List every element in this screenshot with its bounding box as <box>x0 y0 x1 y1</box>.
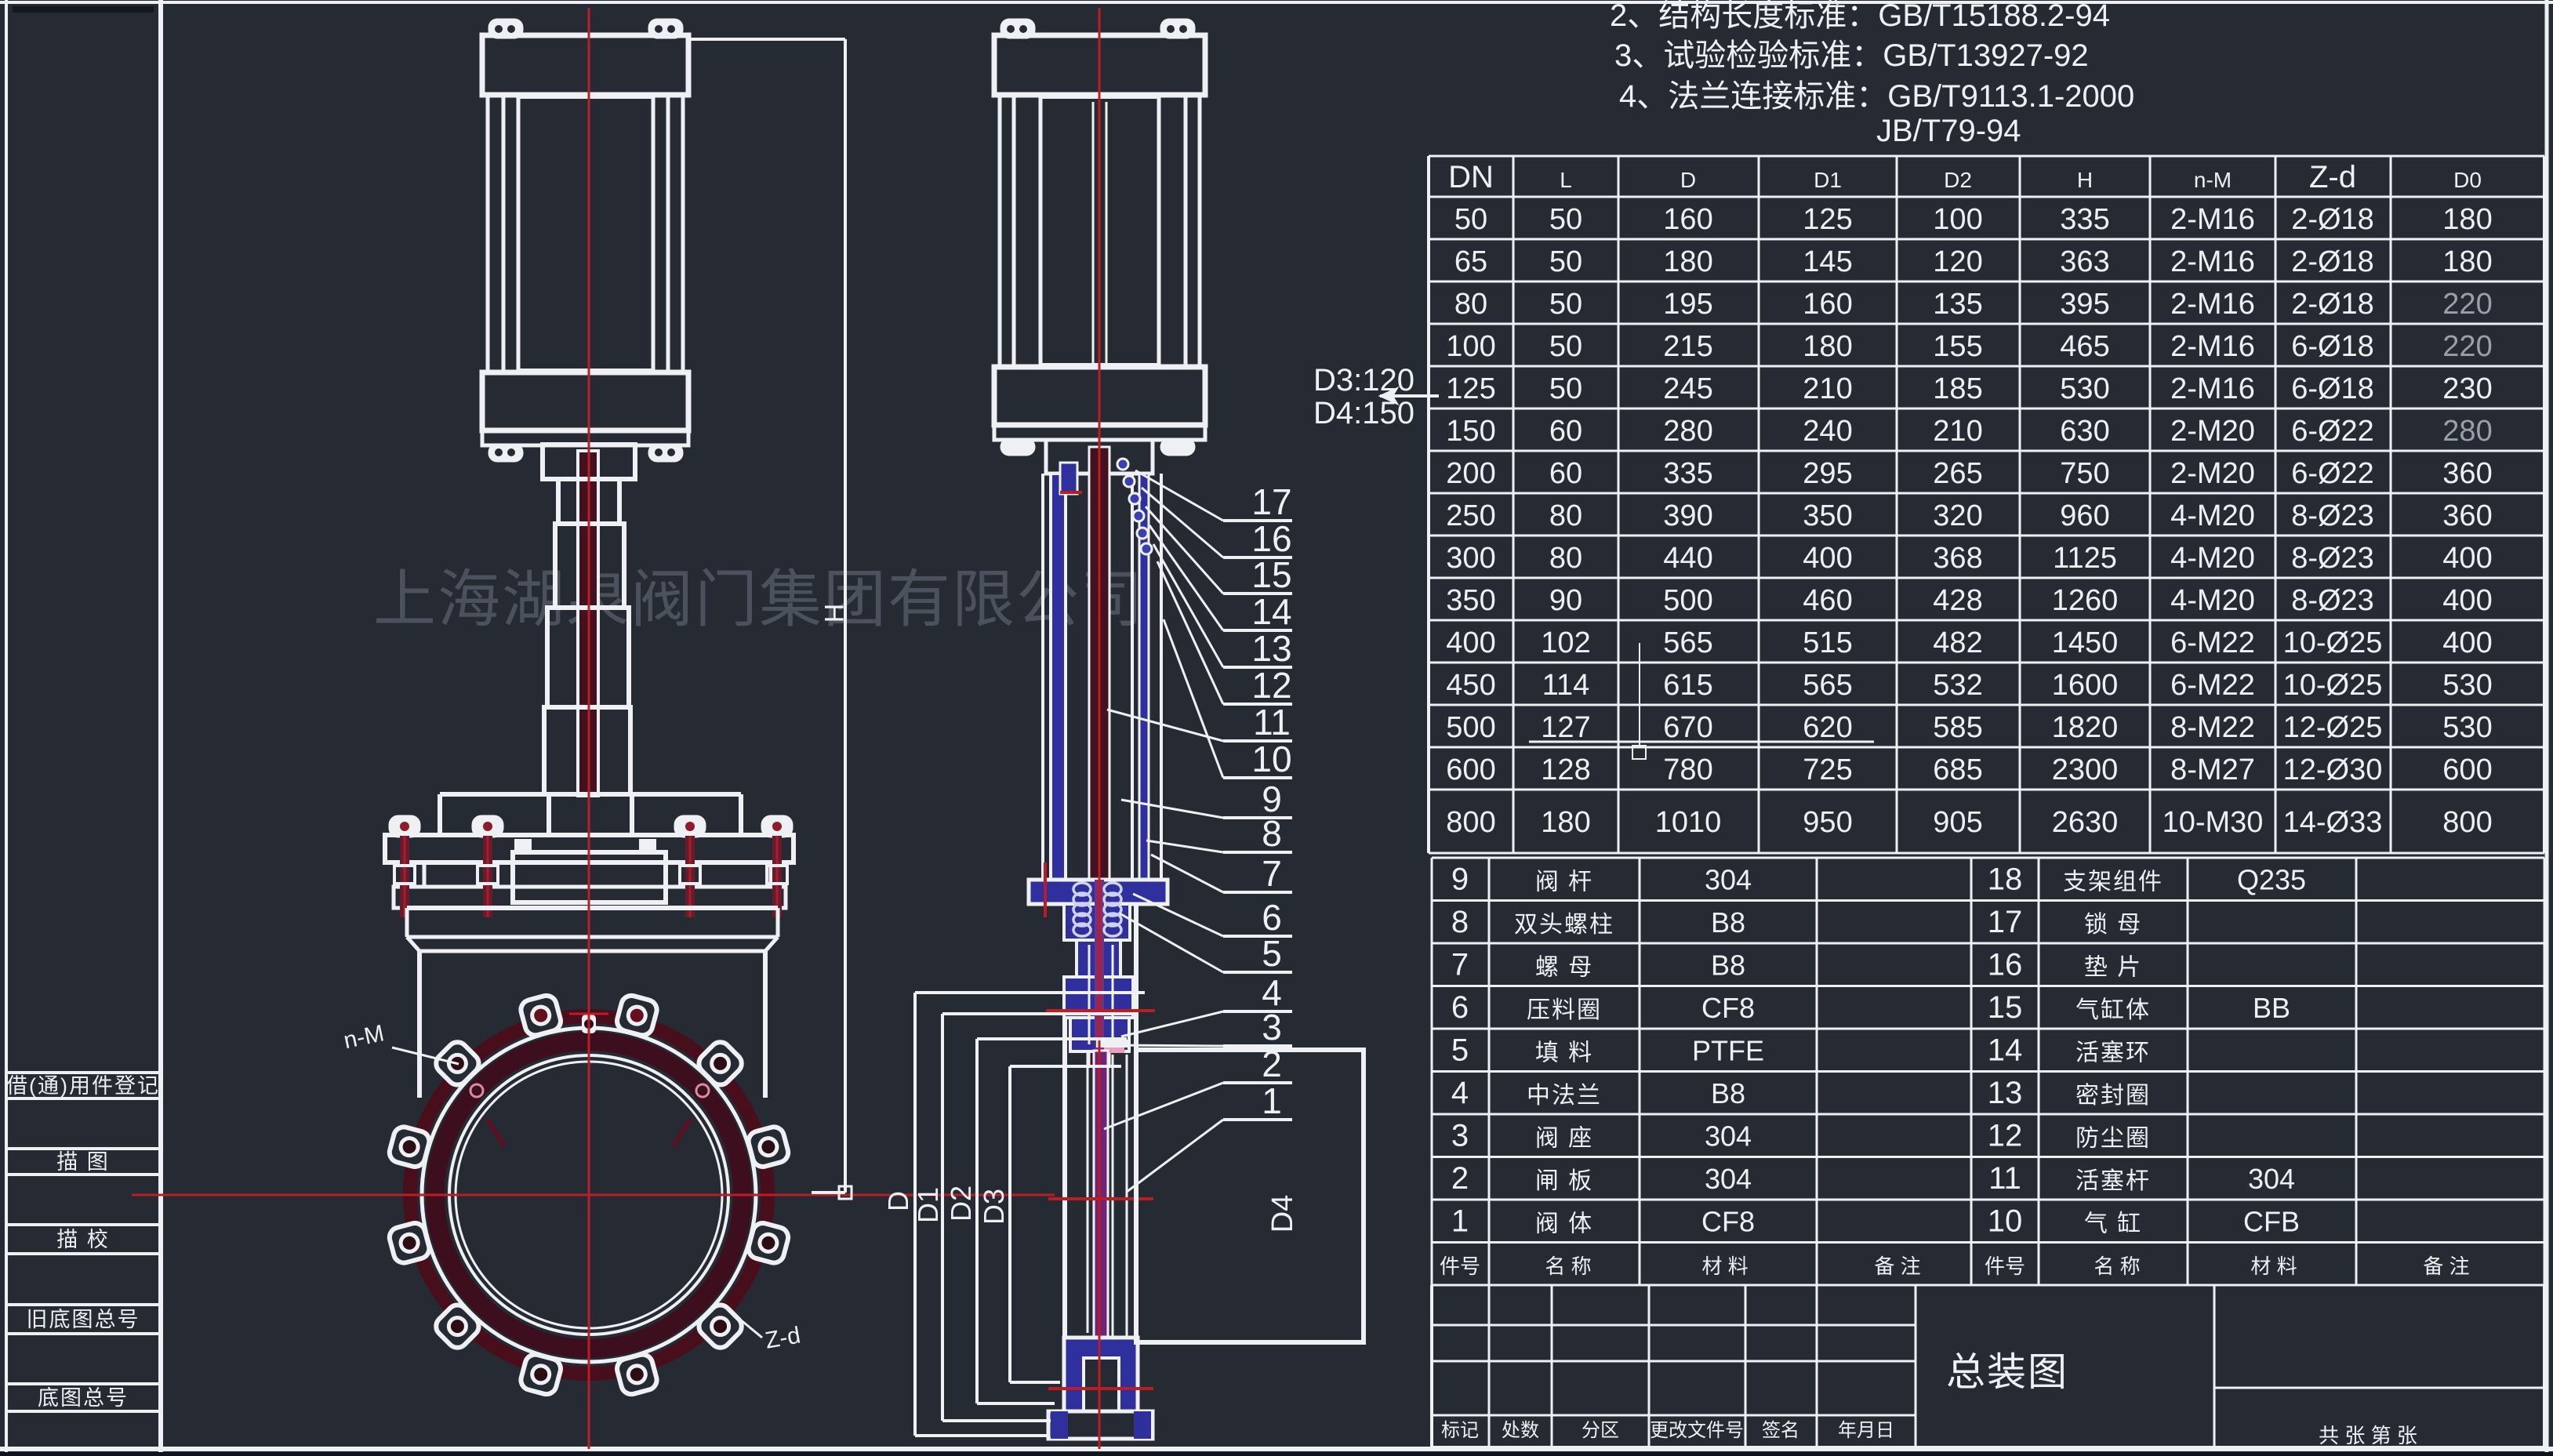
svg-text:265: 265 <box>1933 457 1982 490</box>
svg-text:200: 200 <box>1446 457 1495 490</box>
svg-text:670: 670 <box>1663 711 1712 744</box>
svg-text:400: 400 <box>2442 584 2492 617</box>
svg-text:450: 450 <box>1446 669 1495 702</box>
svg-text:230: 230 <box>2442 372 2492 405</box>
svg-text:80: 80 <box>1454 288 1487 321</box>
svg-text:50: 50 <box>1454 203 1487 236</box>
svg-text:2-Ø18: 2-Ø18 <box>2291 203 2374 236</box>
svg-text:565: 565 <box>1663 626 1712 659</box>
svg-text:闸 板: 闸 板 <box>1535 1168 1593 1194</box>
svg-text:备 注: 备 注 <box>2423 1254 2469 1278</box>
svg-text:11: 11 <box>1988 1161 2021 1196</box>
svg-text:4、法兰连接标准：GB/T9113.1-2000: 4、法兰连接标准：GB/T9113.1-2000 <box>1619 79 2134 114</box>
svg-text:9: 9 <box>1451 862 1469 896</box>
svg-text:10: 10 <box>1251 739 1291 779</box>
svg-text:标记: 标记 <box>1441 1420 1479 1441</box>
svg-text:18: 18 <box>1988 862 2023 896</box>
svg-text:6-Ø18: 6-Ø18 <box>2291 372 2374 405</box>
svg-text:CF8: CF8 <box>1701 1205 1755 1237</box>
svg-text:B8: B8 <box>1711 906 1745 939</box>
svg-text:4-M20: 4-M20 <box>2170 542 2255 575</box>
svg-text:390: 390 <box>1663 499 1712 532</box>
svg-text:H: H <box>2077 168 2093 192</box>
svg-text:8: 8 <box>1451 905 1469 939</box>
svg-text:102: 102 <box>1541 626 1590 659</box>
svg-text:615: 615 <box>1663 669 1712 702</box>
svg-text:482: 482 <box>1933 626 1982 659</box>
svg-text:6-Ø22: 6-Ø22 <box>2291 415 2374 448</box>
svg-text:6: 6 <box>1451 990 1469 1025</box>
svg-text:685: 685 <box>1933 753 1982 786</box>
svg-text:428: 428 <box>1933 584 1982 617</box>
svg-text:17: 17 <box>1251 481 1291 522</box>
svg-text:防尘圈: 防尘圈 <box>2075 1125 2151 1151</box>
svg-text:950: 950 <box>1803 806 1852 839</box>
svg-text:10: 10 <box>1988 1204 2023 1238</box>
svg-text:14: 14 <box>1988 1033 2023 1067</box>
svg-text:更改文件号: 更改文件号 <box>1650 1420 1744 1441</box>
svg-text:4: 4 <box>1451 1076 1469 1110</box>
svg-text:185: 185 <box>1933 372 1982 405</box>
svg-text:活塞环: 活塞环 <box>2075 1040 2151 1066</box>
svg-text:1: 1 <box>1451 1204 1469 1238</box>
svg-text:600: 600 <box>2442 753 2492 786</box>
svg-text:335: 335 <box>1663 457 1712 490</box>
svg-text:D: D <box>882 1191 914 1211</box>
svg-text:515: 515 <box>1803 626 1852 659</box>
svg-text:630: 630 <box>2060 415 2109 448</box>
svg-text:2-M16: 2-M16 <box>2170 372 2255 405</box>
svg-text:12-Ø25: 12-Ø25 <box>2283 711 2383 744</box>
svg-text:14: 14 <box>1251 591 1291 632</box>
svg-text:2-M20: 2-M20 <box>2170 457 2255 490</box>
svg-text:80: 80 <box>1549 542 1582 575</box>
svg-text:125: 125 <box>1803 203 1852 236</box>
svg-text:80: 80 <box>1549 499 1582 532</box>
svg-text:12: 12 <box>1251 665 1291 706</box>
svg-text:530: 530 <box>2442 711 2492 744</box>
svg-text:6: 6 <box>1262 897 1282 938</box>
svg-text:360: 360 <box>2442 457 2492 490</box>
svg-text:350: 350 <box>1446 584 1495 617</box>
svg-text:400: 400 <box>2442 626 2492 659</box>
svg-text:D: D <box>1680 168 1696 192</box>
svg-text:210: 210 <box>1933 415 1982 448</box>
svg-text:8: 8 <box>1262 813 1282 854</box>
svg-text:100: 100 <box>1933 203 1982 236</box>
svg-text:16: 16 <box>1988 947 2023 982</box>
svg-text:L: L <box>1560 168 1572 192</box>
svg-text:1600: 1600 <box>2052 669 2119 702</box>
svg-text:600: 600 <box>1446 753 1495 786</box>
svg-text:3: 3 <box>1262 1007 1282 1048</box>
svg-text:D4: D4 <box>1266 1195 1299 1233</box>
svg-text:BB: BB <box>2253 992 2290 1024</box>
svg-text:2-M16: 2-M16 <box>2170 203 2255 236</box>
svg-text:780: 780 <box>1663 753 1712 786</box>
svg-text:D0: D0 <box>2453 168 2482 192</box>
svg-text:90: 90 <box>1549 584 1582 617</box>
svg-text:2、结构长度标准：GB/T15188.2-94: 2、结构长度标准：GB/T15188.2-94 <box>1610 0 2110 33</box>
svg-text:368: 368 <box>1933 542 1982 575</box>
svg-text:400: 400 <box>1803 542 1852 575</box>
svg-text:8-Ø23: 8-Ø23 <box>2291 584 2374 617</box>
svg-text:2: 2 <box>1262 1044 1282 1084</box>
svg-text:155: 155 <box>1933 330 1982 363</box>
svg-text:50: 50 <box>1549 330 1582 363</box>
svg-text:D2: D2 <box>945 1185 977 1222</box>
svg-text:借(通)用件登记: 借(通)用件登记 <box>6 1074 160 1098</box>
svg-text:n-M: n-M <box>2194 168 2232 192</box>
svg-text:50: 50 <box>1549 372 1582 405</box>
svg-text:800: 800 <box>2442 806 2492 839</box>
svg-text:320: 320 <box>1933 499 1982 532</box>
svg-text:363: 363 <box>2060 245 2109 278</box>
svg-text:7: 7 <box>1262 853 1282 894</box>
svg-text:备 注: 备 注 <box>1874 1254 1920 1278</box>
svg-text:2630: 2630 <box>2052 806 2119 839</box>
svg-text:活塞杆: 活塞杆 <box>2075 1168 2151 1194</box>
svg-text:100: 100 <box>1446 330 1495 363</box>
svg-text:125: 125 <box>1446 372 1495 405</box>
svg-text:材 料: 材 料 <box>1701 1254 1748 1278</box>
svg-text:960: 960 <box>2060 499 2109 532</box>
svg-text:135: 135 <box>1933 288 1982 321</box>
svg-text:JB/T79-94: JB/T79-94 <box>1876 114 2021 148</box>
svg-text:支架组件: 支架组件 <box>2063 869 2163 895</box>
svg-text:Q235: Q235 <box>2237 863 2306 895</box>
svg-text:2-M20: 2-M20 <box>2170 415 2255 448</box>
svg-text:180: 180 <box>1803 330 1852 363</box>
svg-text:年月日: 年月日 <box>1838 1420 1894 1441</box>
svg-text:304: 304 <box>1705 863 1752 895</box>
svg-text:名 称: 名 称 <box>2094 1254 2140 1278</box>
svg-text:总装图: 总装图 <box>1946 1350 2068 1394</box>
svg-text:2: 2 <box>1451 1161 1469 1196</box>
svg-text:8-Ø23: 8-Ø23 <box>2291 542 2374 575</box>
svg-text:565: 565 <box>1803 669 1852 702</box>
svg-text:描 校: 描 校 <box>56 1228 110 1251</box>
svg-text:描 图: 描 图 <box>56 1150 110 1174</box>
svg-text:465: 465 <box>2060 330 2109 363</box>
svg-text:395: 395 <box>2060 288 2109 321</box>
svg-text:CFB: CFB <box>2243 1205 2300 1237</box>
svg-text:12-Ø30: 12-Ø30 <box>2283 753 2383 786</box>
svg-text:60: 60 <box>1549 457 1582 490</box>
svg-text:180: 180 <box>2442 203 2492 236</box>
svg-text:220: 220 <box>2442 288 2492 321</box>
svg-text:8-M27: 8-M27 <box>2170 753 2255 786</box>
svg-text:中法兰: 中法兰 <box>1527 1083 1602 1109</box>
svg-text:280: 280 <box>2442 415 2492 448</box>
svg-text:件号: 件号 <box>1985 1254 2025 1278</box>
svg-text:500: 500 <box>1663 584 1712 617</box>
svg-text:10-Ø25: 10-Ø25 <box>2283 669 2383 702</box>
svg-text:压料圈: 压料圈 <box>1527 997 1602 1023</box>
svg-text:签名: 签名 <box>1762 1420 1799 1441</box>
svg-text:400: 400 <box>2442 542 2492 575</box>
svg-text:13: 13 <box>1251 628 1291 669</box>
svg-text:50: 50 <box>1549 288 1582 321</box>
svg-text:440: 440 <box>1663 542 1712 575</box>
svg-text:350: 350 <box>1803 499 1852 532</box>
svg-text:1260: 1260 <box>2052 584 2119 617</box>
svg-text:旧底图总号: 旧底图总号 <box>27 1308 140 1331</box>
svg-text:8-M22: 8-M22 <box>2170 711 2255 744</box>
svg-text:填 料: 填 料 <box>1535 1040 1593 1066</box>
svg-text:B8: B8 <box>1711 949 1745 981</box>
svg-text:145: 145 <box>1803 245 1852 278</box>
svg-text:1010: 1010 <box>1655 806 1722 839</box>
svg-text:垫 片: 垫 片 <box>2084 954 2142 980</box>
svg-text:6-Ø18: 6-Ø18 <box>2291 330 2374 363</box>
svg-text:D1: D1 <box>912 1187 944 1223</box>
svg-text:D1: D1 <box>1814 168 1842 192</box>
svg-text:处数: 处数 <box>1502 1420 1539 1441</box>
svg-text:6-Ø22: 6-Ø22 <box>2291 457 2374 490</box>
svg-text:10-M30: 10-M30 <box>2163 806 2264 839</box>
svg-text:气缸体: 气缸体 <box>2075 997 2151 1023</box>
svg-text:160: 160 <box>1663 203 1712 236</box>
svg-text:60: 60 <box>1549 415 1582 448</box>
svg-text:150: 150 <box>1446 415 1495 448</box>
svg-text:6-M22: 6-M22 <box>2170 669 2255 702</box>
svg-text:532: 532 <box>1933 669 1982 702</box>
svg-text:240: 240 <box>1803 415 1852 448</box>
svg-text:气 缸: 气 缸 <box>2084 1211 2142 1236</box>
svg-text:210: 210 <box>1803 372 1852 405</box>
svg-text:13: 13 <box>1988 1076 2023 1110</box>
svg-text:H: H <box>819 604 848 623</box>
svg-text:2300: 2300 <box>2052 753 2119 786</box>
svg-text:1: 1 <box>1262 1080 1282 1121</box>
svg-text:725: 725 <box>1803 753 1852 786</box>
svg-text:6-M22: 6-M22 <box>2170 626 2255 659</box>
svg-text:分区: 分区 <box>1582 1420 1619 1441</box>
svg-text:905: 905 <box>1933 806 1982 839</box>
svg-text:1125: 1125 <box>2053 542 2117 575</box>
svg-text:215: 215 <box>1663 330 1712 363</box>
svg-text:3: 3 <box>1451 1118 1469 1153</box>
svg-text:180: 180 <box>2442 245 2492 278</box>
svg-text:304: 304 <box>1705 1163 1752 1195</box>
svg-text:底图总号: 底图总号 <box>38 1386 129 1410</box>
svg-text:530: 530 <box>2060 372 2109 405</box>
svg-text:1820: 1820 <box>2052 711 2119 744</box>
svg-text:双头螺柱: 双头螺柱 <box>1514 912 1614 938</box>
svg-text:5: 5 <box>1262 933 1282 974</box>
svg-text:250: 250 <box>1446 499 1495 532</box>
svg-text:2-M16: 2-M16 <box>2170 288 2255 321</box>
svg-text:10-Ø25: 10-Ø25 <box>2283 626 2383 659</box>
svg-text:8-Ø23: 8-Ø23 <box>2291 499 2374 532</box>
svg-text:7: 7 <box>1451 947 1469 982</box>
svg-text:DN: DN <box>1448 160 1494 194</box>
svg-text:304: 304 <box>2248 1163 2295 1195</box>
svg-text:585: 585 <box>1933 711 1982 744</box>
svg-text:4-M20: 4-M20 <box>2170 584 2255 617</box>
svg-text:180: 180 <box>1663 245 1712 278</box>
svg-text:上海湖泉阀门集团有限公司: 上海湖泉阀门集团有限公司 <box>373 565 1145 634</box>
svg-text:阀 体: 阀 体 <box>1535 1211 1593 1236</box>
svg-text:400: 400 <box>1446 626 1495 659</box>
svg-text:2-Ø18: 2-Ø18 <box>2291 245 2374 278</box>
svg-text:密封圈: 密封圈 <box>2075 1083 2151 1109</box>
svg-text:460: 460 <box>1803 584 1852 617</box>
svg-text:15: 15 <box>1251 554 1291 595</box>
svg-text:620: 620 <box>1803 711 1852 744</box>
svg-text:295: 295 <box>1803 457 1852 490</box>
svg-text:128: 128 <box>1541 753 1590 786</box>
svg-text:阀 座: 阀 座 <box>1535 1125 1593 1151</box>
svg-text:15: 15 <box>1988 990 2023 1025</box>
svg-text:120: 120 <box>1933 245 1982 278</box>
svg-text:114: 114 <box>1542 669 1590 702</box>
svg-text:750: 750 <box>2060 457 2109 490</box>
svg-text:Z-d: Z-d <box>2309 160 2356 194</box>
svg-text:名 称: 名 称 <box>1545 1254 1591 1278</box>
svg-text:195: 195 <box>1663 288 1712 321</box>
svg-text:螺 母: 螺 母 <box>1535 954 1593 980</box>
svg-text:件号: 件号 <box>1440 1254 1480 1278</box>
svg-text:335: 335 <box>2060 203 2109 236</box>
svg-text:220: 220 <box>2442 330 2492 363</box>
svg-text:2-Ø18: 2-Ø18 <box>2291 288 2374 321</box>
svg-text:材 料: 材 料 <box>2250 1254 2297 1278</box>
svg-text:2-M16: 2-M16 <box>2170 330 2255 363</box>
svg-text:阀 杆: 阀 杆 <box>1535 869 1593 895</box>
svg-text:4-M20: 4-M20 <box>2170 499 2255 532</box>
svg-text:180: 180 <box>1541 806 1590 839</box>
svg-text:530: 530 <box>2442 669 2492 702</box>
svg-text:280: 280 <box>1663 415 1712 448</box>
svg-text:5: 5 <box>1451 1033 1469 1067</box>
svg-text:300: 300 <box>1446 542 1495 575</box>
svg-text:12: 12 <box>1988 1118 2023 1153</box>
svg-text:800: 800 <box>1446 806 1495 839</box>
svg-text:共 张 第 张: 共 张 第 张 <box>2319 1424 2417 1447</box>
svg-text:锁 母: 锁 母 <box>2084 912 2142 938</box>
svg-text:3、试验检验标准：GB/T13927-92: 3、试验检验标准：GB/T13927-92 <box>1614 38 2089 73</box>
svg-text:160: 160 <box>1803 288 1852 321</box>
svg-text:D3:120: D3:120 <box>1313 363 1414 398</box>
svg-text:CF8: CF8 <box>1701 992 1755 1024</box>
svg-text:304: 304 <box>1705 1120 1752 1152</box>
svg-text:500: 500 <box>1446 711 1495 744</box>
svg-text:17: 17 <box>1988 905 2023 939</box>
svg-text:245: 245 <box>1663 372 1712 405</box>
svg-text:D3: D3 <box>978 1189 1010 1225</box>
svg-text:50: 50 <box>1549 203 1582 236</box>
svg-text:D4:150: D4:150 <box>1313 396 1414 430</box>
svg-text:1450: 1450 <box>2052 626 2119 659</box>
svg-text:2-M16: 2-M16 <box>2170 245 2255 278</box>
svg-text:16: 16 <box>1251 518 1291 559</box>
svg-text:127: 127 <box>1541 711 1590 744</box>
svg-text:D2: D2 <box>1944 168 1972 192</box>
svg-text:11: 11 <box>1253 702 1291 743</box>
svg-text:50: 50 <box>1549 245 1582 278</box>
svg-text:PTFE: PTFE <box>1692 1034 1764 1066</box>
svg-text:360: 360 <box>2442 499 2492 532</box>
svg-text:65: 65 <box>1454 245 1487 278</box>
svg-text:14-Ø33: 14-Ø33 <box>2283 806 2383 839</box>
svg-text:B8: B8 <box>1711 1077 1745 1109</box>
